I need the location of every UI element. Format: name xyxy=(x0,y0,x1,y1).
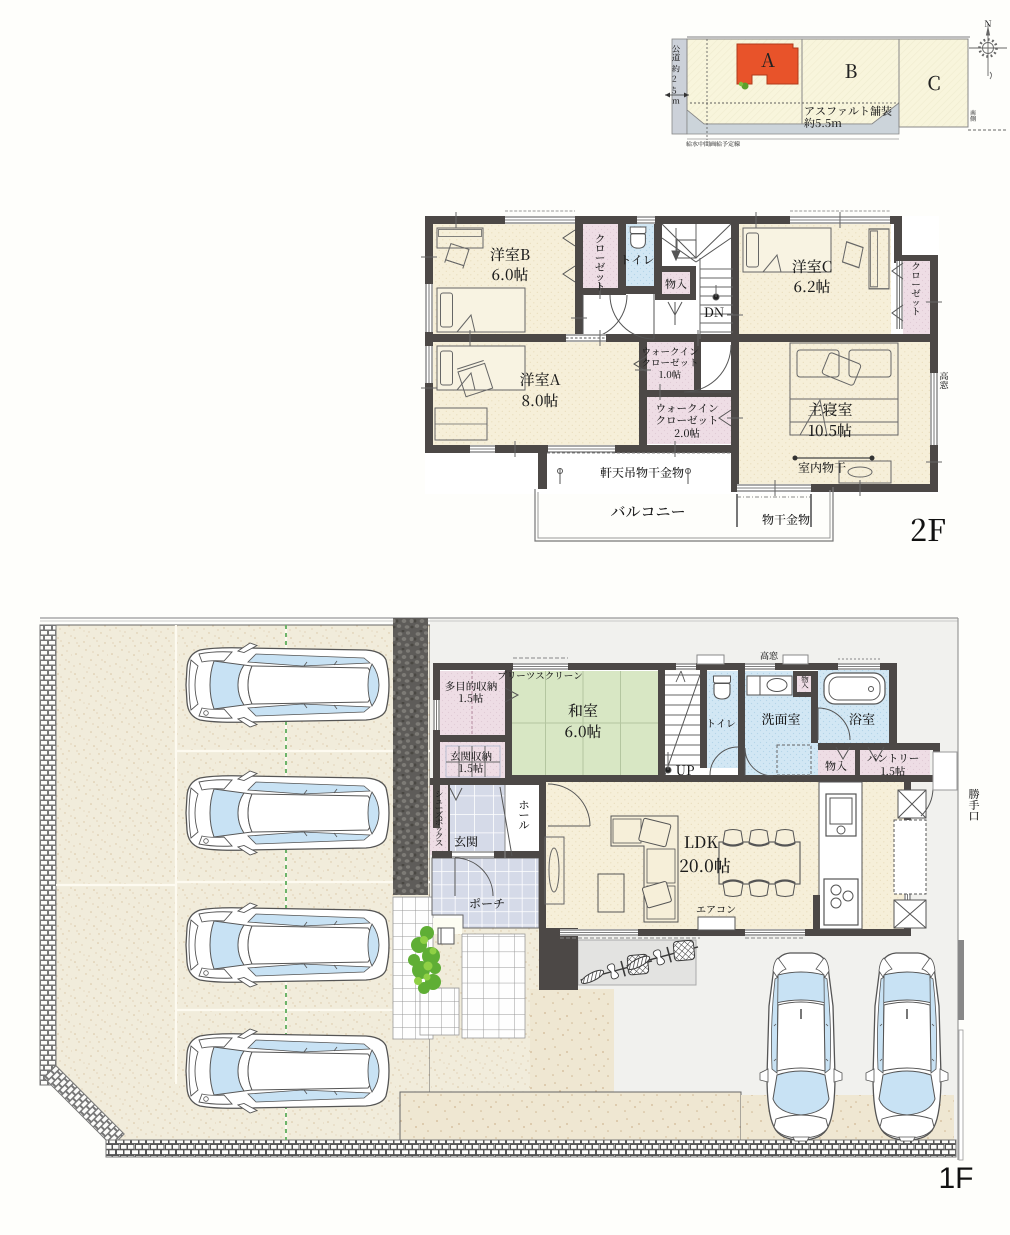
svg-text:1F: 1F xyxy=(938,1162,973,1195)
